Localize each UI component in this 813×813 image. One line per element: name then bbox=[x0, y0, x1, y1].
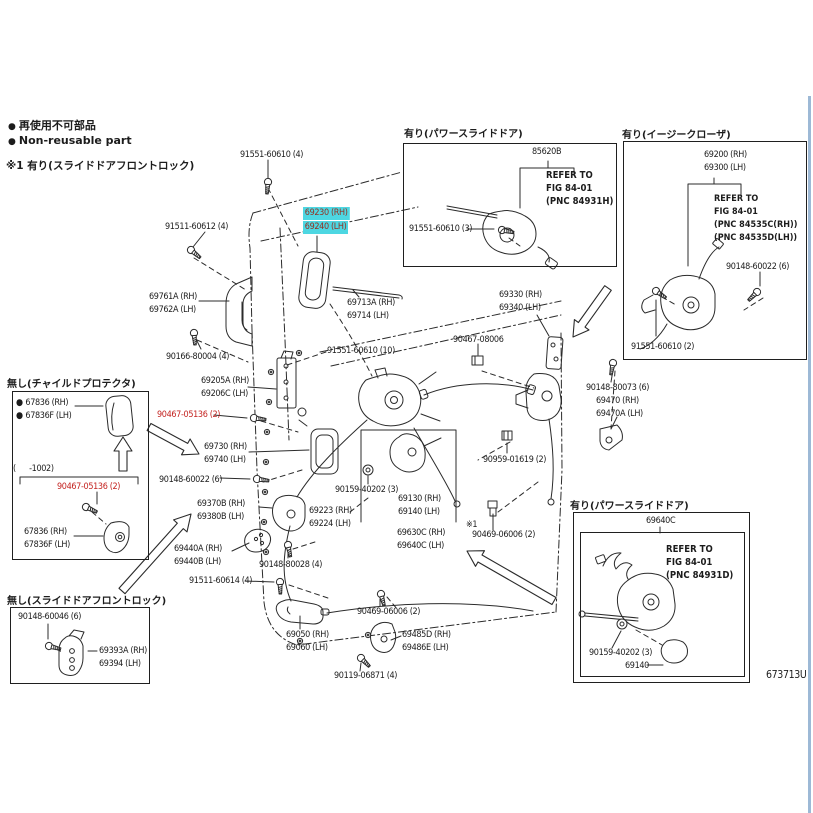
part-label-69630c[interactable]: 69630C (RH)69640C (LH) bbox=[397, 527, 445, 553]
part-label-line: 69714 (LH) bbox=[347, 310, 395, 323]
part-label-69713a[interactable]: 69713A (RH)69714 (LH) bbox=[347, 297, 395, 323]
bolt-icon bbox=[356, 653, 372, 669]
legend-text: 再使用不可部品 bbox=[19, 119, 96, 132]
part-label-69370b[interactable]: 69370B (RH)69380B (LH) bbox=[197, 498, 245, 524]
part-label-69761a[interactable]: 69761A (RH)69762A (LH) bbox=[149, 291, 197, 317]
part-label-line: 69223 (RH) bbox=[309, 505, 352, 518]
part-label-90148-60022-x6[interactable]: 90148-60022 (6) bbox=[159, 474, 222, 487]
non-reusable-dot-icon: ● bbox=[16, 398, 23, 408]
part-label-line: 69230 (RH) bbox=[303, 207, 349, 220]
part-label-69050[interactable]: 69050 (RH)69060 (LH) bbox=[286, 629, 329, 655]
refer-line: REFER TO bbox=[546, 169, 613, 182]
part-label-69485d[interactable]: 69485D (RH)69486E (LH) bbox=[402, 629, 451, 655]
part-label-line: 69206C (LH) bbox=[201, 388, 249, 401]
refer-line: (PNC 84931D) bbox=[666, 569, 733, 582]
part-label-line: 69205A (RH) bbox=[201, 375, 249, 388]
refer-note-84931d: REFER TOFIG 84-01(PNC 84931D) bbox=[666, 543, 733, 582]
non-reusable-dot-icon: ● bbox=[16, 411, 23, 421]
part-label-91551-60610-x3[interactable]: 91551-60610 (3) bbox=[409, 223, 472, 236]
part-label-line: 69380B (LH) bbox=[197, 511, 245, 524]
part-label-69205a[interactable]: 69205A (RH)69206C (LH) bbox=[201, 375, 249, 401]
part-label-91551-60610-x2[interactable]: 91551-60610 (2) bbox=[631, 341, 694, 354]
bolt-icon bbox=[607, 359, 617, 376]
power-slide-top-title: 有り(パワースライドドア) bbox=[404, 125, 523, 140]
part-label-line: 69762A (LH) bbox=[149, 304, 197, 317]
refer-line: (PNC 84931H) bbox=[546, 195, 613, 208]
part-label-90467-05136-x2[interactable]: 90467-05136 (2) bbox=[157, 409, 220, 422]
part-label-line: 69340 (LH) bbox=[499, 302, 542, 315]
part-label-90469-06006-x2-a[interactable]: 90469-06006 (2) bbox=[472, 529, 535, 542]
part-label-line: 69200 (RH) bbox=[704, 149, 747, 162]
part-label-line: 67836 (RH) bbox=[24, 526, 70, 539]
part-label-line: 69640C (LH) bbox=[397, 540, 445, 553]
part-label-90148-80073-x6[interactable]: 90148-80073 (6) bbox=[586, 382, 649, 395]
bolt-icon bbox=[276, 578, 284, 594]
no-slide-front-lock-title: 無し(スライドドアフロントロック) bbox=[7, 592, 166, 607]
bolt-icon bbox=[263, 178, 272, 194]
part-label-67836-a1[interactable]: ●67836 (RH) bbox=[16, 397, 68, 410]
part-label-90467-08006[interactable]: 90467-08006 bbox=[453, 334, 503, 347]
part-label-69223[interactable]: 69223 (RH)69224 (LH) bbox=[309, 505, 352, 531]
refer-note-84535: REFER TOFIG 84-01(PNC 84535C(RH))(PNC 84… bbox=[714, 193, 797, 245]
part-label-line: 69300 (LH) bbox=[704, 162, 747, 175]
legend-text: Non-reusable part bbox=[19, 134, 132, 147]
non-reusable-dot-icon: ● bbox=[8, 122, 16, 132]
arrow-down-left-icon bbox=[573, 286, 611, 337]
part-label-line: 69394 (LH) bbox=[99, 658, 147, 671]
bolt-icon bbox=[253, 475, 269, 484]
refer-note-84931h: REFER TOFIG 84-01(PNC 84931H) bbox=[546, 169, 613, 208]
part-label-line: 67836 (RH) bbox=[25, 398, 68, 408]
power-slide-bottom-title: 有り(パワースライドドア) bbox=[570, 497, 689, 512]
refer-line: REFER TO bbox=[666, 543, 733, 556]
part-label-69730[interactable]: 69730 (RH)69740 (LH) bbox=[204, 441, 247, 467]
part-label-91551-60610-x10[interactable]: 91551-60610 (10) bbox=[327, 345, 395, 358]
part-label-91511-60614-x4[interactable]: 91511-60614 (4) bbox=[189, 575, 252, 588]
part-label-69330[interactable]: 69330 (RH)69340 (LH) bbox=[499, 289, 542, 315]
part-label-line: 69470A (LH) bbox=[596, 408, 643, 421]
part-label-line: 69140 (LH) bbox=[398, 506, 441, 519]
part-label-69640c[interactable]: 69640C bbox=[646, 515, 675, 528]
refer-line: (PNC 84535D(LH)) bbox=[714, 232, 797, 245]
refer-line: REFER TO bbox=[714, 193, 797, 206]
part-label-85620b[interactable]: 85620B bbox=[532, 146, 561, 159]
part-label-90148-80028-x4[interactable]: 90148-80028 (4) bbox=[259, 559, 322, 572]
non-reusable-dot-icon: ● bbox=[8, 137, 16, 147]
part-label-line: 69393A (RH) bbox=[99, 645, 147, 658]
parts-diagram-page: ●再使用不可部品 ●Non-reusable part ※1 有り(スライドドア… bbox=[0, 0, 813, 813]
part-label-line: 69060 (LH) bbox=[286, 642, 329, 655]
part-label-69130[interactable]: 69130 (RH)69140 (LH) bbox=[398, 493, 441, 519]
part-label-90159-40202-x3-b[interactable]: 90159-40202 (3) bbox=[589, 647, 652, 660]
part-label-line: 69330 (RH) bbox=[499, 289, 542, 302]
part-label-line: 69486E (LH) bbox=[402, 642, 451, 655]
part-label-line: 69730 (RH) bbox=[204, 441, 247, 454]
legend-non-reusable-en: ●Non-reusable part bbox=[8, 134, 132, 149]
part-label-line: 67836F (LH) bbox=[24, 539, 70, 552]
arrow-up-left-icon bbox=[467, 551, 556, 605]
legend-note-ref1: ※1 有り(スライドドアフロントロック) bbox=[6, 160, 194, 173]
part-label-69200[interactable]: 69200 (RH)69300 (LH) bbox=[704, 149, 747, 175]
bolt-icon bbox=[190, 329, 199, 345]
legend-non-reusable-jp: ●再使用不可部品 bbox=[8, 119, 96, 134]
refer-line: (PNC 84535C(RH)) bbox=[714, 219, 797, 232]
date-range-label: ( -1002) bbox=[13, 463, 54, 476]
part-label-67836-b[interactable]: 67836 (RH)67836F (LH) bbox=[24, 526, 70, 552]
part-label-line: 69370B (RH) bbox=[197, 498, 245, 511]
part-label-line: 69713A (RH) bbox=[347, 297, 395, 310]
refer-line: FIG 84-01 bbox=[714, 206, 797, 219]
part-label-90469-06006-x2-b[interactable]: 90469-06006 (2) bbox=[357, 606, 420, 619]
part-label-90166-80004-x4[interactable]: 90166-80004 (4) bbox=[166, 351, 229, 364]
part-label-line: 69224 (LH) bbox=[309, 518, 352, 531]
no-child-protector-title: 無し(チャイルドプロテクタ) bbox=[7, 375, 136, 390]
part-label-69393a[interactable]: 69393A (RH)69394 (LH) bbox=[99, 645, 147, 671]
part-label-90467-05136-x2-b[interactable]: 90467-05136 (2) bbox=[57, 481, 120, 494]
part-label-69470[interactable]: 69470 (RH)69470A (LH) bbox=[596, 395, 643, 421]
arrow-right-icon bbox=[147, 424, 199, 455]
part-label-line: 69485D (RH) bbox=[402, 629, 451, 642]
part-label-91511-60612-x4[interactable]: 91511-60612 (4) bbox=[165, 221, 228, 234]
part-label-line: 69240 (LH) bbox=[303, 221, 348, 234]
part-label-line: 69630C (RH) bbox=[397, 527, 445, 540]
part-label-line: 69740 (LH) bbox=[204, 454, 247, 467]
part-label-line: 69440A (RH) bbox=[174, 543, 222, 556]
part-label-line: 69130 (RH) bbox=[398, 493, 441, 506]
part-label-90959-01619-x2[interactable]: 90959-01619 (2) bbox=[483, 454, 546, 467]
part-label-67836-a2[interactable]: ●67836F (LH) bbox=[16, 410, 71, 423]
part-label-90148-60046-x6[interactable]: 90148-60046 (6) bbox=[18, 611, 81, 624]
part-label-90119-06871-x4[interactable]: 90119-06871 (4) bbox=[334, 670, 397, 683]
part-label-91551-60610-x4[interactable]: 91551-60610 (4) bbox=[240, 149, 303, 162]
part-label-line: 69440B (LH) bbox=[174, 556, 222, 569]
part-label-69140[interactable]: 69140 bbox=[625, 660, 649, 673]
figure-code: 673713U bbox=[766, 669, 806, 682]
easy-closer-title: 有り(イージークローザ) bbox=[622, 126, 731, 141]
refer-line: FIG 84-01 bbox=[546, 182, 613, 195]
part-label-69230-highlighted[interactable]: 69230 (RH)69240 (LH) bbox=[303, 207, 349, 235]
part-label-line: 69761A (RH) bbox=[149, 291, 197, 304]
part-label-90148-60022-x6-b[interactable]: 90148-60022 (6) bbox=[726, 261, 789, 274]
part-label-90159-40202-x3[interactable]: 90159-40202 (3) bbox=[335, 484, 398, 497]
part-label-line: 69050 (RH) bbox=[286, 629, 329, 642]
bolt-icon bbox=[377, 590, 388, 607]
part-label-69440a[interactable]: 69440A (RH)69440B (LH) bbox=[174, 543, 222, 569]
refer-line: FIG 84-01 bbox=[666, 556, 733, 569]
part-label-line: 67836F (LH) bbox=[25, 411, 71, 421]
part-label-line: 69470 (RH) bbox=[596, 395, 643, 408]
page-edge-line bbox=[808, 96, 811, 813]
